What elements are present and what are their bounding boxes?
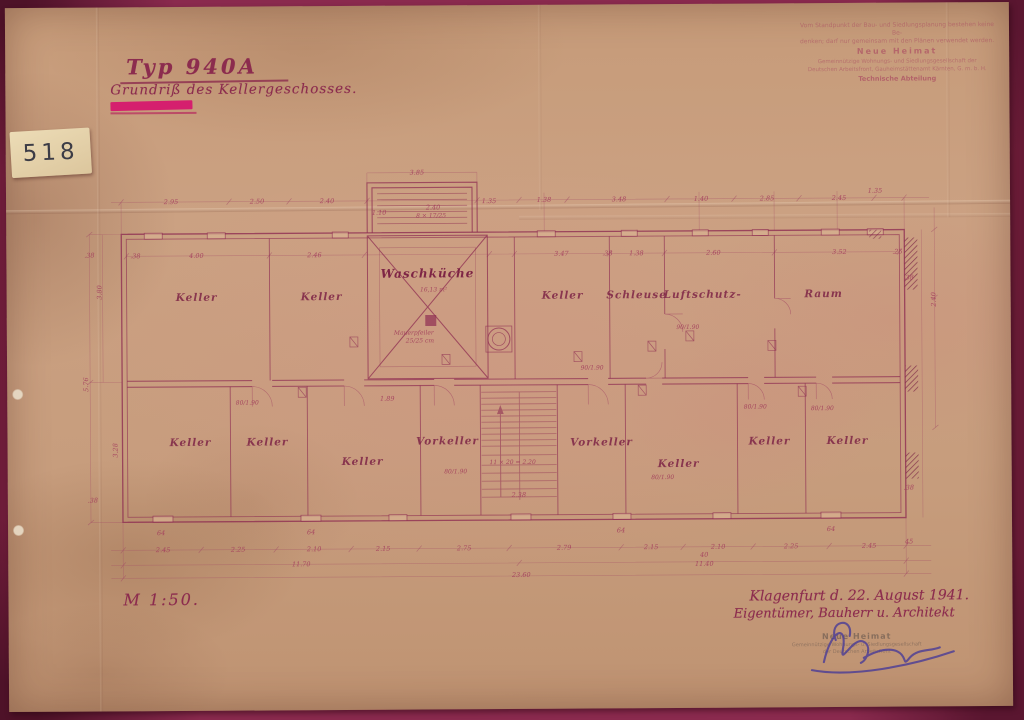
dimension-label: 11 × 20 = 2.20 [489,459,536,466]
dimension-label: .25 [892,248,902,256]
wash-kettle [486,326,512,352]
dimension-label: 2.15 [375,545,391,553]
dimension-label: 2.10 [710,543,726,551]
dimension-label: 80/1.90 [651,474,674,481]
dimension-label: 1.89 [380,395,395,403]
dimension-label: 1.35 [482,197,497,205]
dimension-label: 3.28 [112,443,120,458]
dimension-label: 2.45 [155,546,171,554]
dimension-label: 2.95 [163,198,179,206]
dimension-label: 1.40 [694,195,709,203]
dimension-label: 2.25 [783,542,799,550]
dimension-label: 1.38 [629,249,644,257]
dimension-label: 2.46 [306,251,322,259]
dimension-label: 2.75 [456,544,472,552]
room-labels: KellerKellerWaschkücheKellerSchleuseLuft… [168,264,869,473]
room-label: Schleuse [606,289,667,301]
room-label: Keller [300,291,343,303]
room-label: Vorkeller [570,436,633,448]
room-label: Vorkeller [416,435,479,447]
dimension-label: 80/1.90 [444,468,467,475]
dimension-label: 23.60 [511,571,531,579]
paper-content: 518 Typ 940A Grundriß des Kellergeschoss… [5,2,1013,712]
dimension-label: 2.60 [705,249,721,257]
dimension-label: 40 [699,551,708,559]
dimension-label: 2.85 [759,194,775,202]
chimney-symbols [298,330,806,399]
dimension-label: 90/1.90 [676,324,699,331]
dimension-label: 5.76 [82,377,90,392]
dimension-labels: 2.952.502.401.383.481.402.852.451.353.85… [81,165,939,581]
dimension-label: 2.40 [425,203,441,211]
dimension-label: 2.10 [306,545,322,553]
dimension-label: 2.25 [230,546,246,554]
dimension-label: 11.40 [695,560,714,568]
room-label: Keller [826,435,869,447]
dimension-label: 3.80 [96,285,104,300]
dimension-label: 3.85 [410,169,425,177]
room-label: Luftschutz- [663,289,742,301]
door-swings [252,298,833,407]
dimension-label: 64 [307,528,315,536]
hatched-wall-sections [869,230,919,479]
dimension-label: 25/25 cm [405,337,435,344]
room-label: Keller [657,458,700,470]
dimension-label: .38 [84,252,94,260]
dimension-label: 2.15 [643,543,659,551]
dimension-label: 2.45 [861,542,877,550]
place-and-date: Klagenfurt d. 22. August 1941. [749,587,969,604]
dimension-label: 2.79 [556,544,572,552]
dimension-label: .38 [904,484,914,492]
room-label: Keller [169,437,212,449]
dimension-label: 80/1.90 [811,405,834,412]
dimension-label: 64 [157,529,165,537]
dimension-label: 2.40 [319,197,335,205]
dimension-label: 1.38 [537,196,552,204]
dimension-label: 3.48 [612,195,627,203]
dimension-label: 64 [617,526,625,534]
dimension-label: .38 [88,497,98,505]
scale-note: M 1:50. [123,590,200,609]
scanned-blueprint-page: { "archive_label": { "number": "518" }, … [0,0,1024,720]
room-label: Raum [803,288,843,300]
dimension-label: 11.70 [292,560,311,568]
dimension-label: 2.38 [511,491,527,499]
room-label: Keller [748,435,791,447]
dimension-label: 80/1.90 [744,403,767,410]
dimension-label: 64 [827,525,835,533]
dimension-label: 1.10 [372,209,387,217]
dimension-label: 2.40 [930,292,938,308]
dimension-label: 4.00 [188,252,204,260]
dimension-label: .38 [602,249,612,257]
dimension-label: 2.45 [831,194,847,202]
signature [802,609,972,680]
dimension-label: .38 [130,252,140,260]
dimension-label: .38 [903,274,913,282]
dimension-label: 3.47 [554,250,569,258]
room-label: Waschküche [381,266,475,281]
room-label: Keller [341,456,384,468]
blueprint-paper: 518 Typ 940A Grundriß des Kellergeschoss… [5,2,1013,712]
dimension-label: 16,13 m² [420,286,448,293]
dimension-label: 80/1.90 [236,400,259,407]
dimension-label: 2.50 [249,197,265,205]
room-label: Keller [175,292,218,304]
room-label: Keller [246,436,289,448]
staircases [377,193,557,501]
dimension-label: 3.52 [832,248,847,256]
dimension-label: 1.35 [868,187,883,195]
dimension-label: 8 × 17/25 [416,212,446,219]
dimension-label: 90/1.90 [581,364,604,371]
room-label: Keller [541,290,584,302]
dimension-ticks [86,194,939,581]
walls [121,180,906,523]
dimension-label: 45 [904,538,913,546]
dimension-label: Mauerpfeiler [393,329,435,336]
